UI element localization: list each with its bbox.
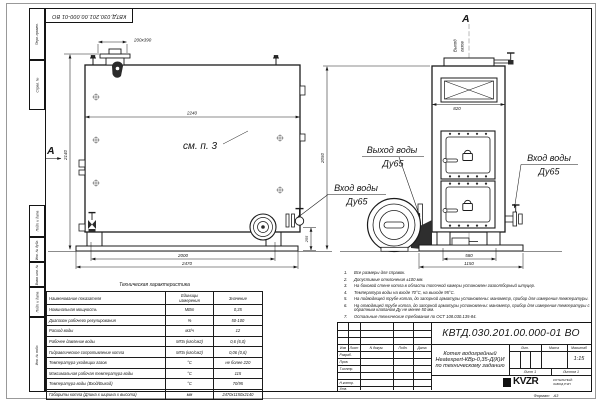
notes-list: 1.Все размеры для справок. 2.Допустимые …: [343, 271, 590, 321]
note-text: Все размеры для справок.: [354, 271, 590, 276]
cell-value: 70/95: [213, 379, 262, 390]
list-item: 5.На подводящей трубе котла, до запорной…: [343, 297, 590, 302]
sheets-total: Листов 1: [551, 370, 591, 374]
note-number: 4.: [343, 291, 354, 296]
frame-col-sprav: Справ. №: [29, 60, 45, 110]
list-item: 2.Допустимые отклонения ±100 мм.: [343, 278, 590, 283]
cell-value: 115: [213, 368, 262, 379]
table-row: Температура уходящих газов°Сне более 220: [47, 357, 263, 368]
table-row: Гидравлическое сопротивление котлаМПа (к…: [47, 347, 263, 358]
cell-name: Номинальная мощность: [47, 305, 166, 316]
cell-units: м3/ч: [166, 326, 213, 337]
table-row: Габариты котла (Длина х ширина х высота)…: [47, 389, 263, 400]
cell-name: Габариты котла (Длина х ширина х высота): [47, 389, 166, 400]
format-value: А3: [553, 393, 558, 398]
frame-col-perv-primen: Перв. примен.: [29, 8, 45, 60]
frame-col-label: Инв. № дубл.: [35, 239, 39, 259]
cell-name: Рабочее давление воды: [47, 336, 166, 347]
note-text: Остальные технические требования по ОСТ …: [354, 315, 590, 320]
scale-label: Масштаб: [567, 346, 591, 350]
note-text: На подводящей трубе котла, до запорной а…: [354, 297, 590, 302]
note-number: 6.: [343, 304, 354, 314]
format-label: Формат: [534, 393, 550, 398]
table-row: Диапазон рабочего регулирования%50-100: [47, 315, 263, 326]
col-header-name: Наименование показателя: [47, 292, 166, 305]
table-row: Температура воды (Вход/Выход)°С70/95: [47, 379, 263, 390]
role-nkontr: Н.контр.: [340, 381, 354, 385]
note-number: 1.: [343, 271, 354, 276]
kvzr-logo-icon: [503, 378, 511, 387]
kvzr-logo-text: KVZR: [513, 376, 538, 387]
company-name: КОТЕЛЬНЫЙ ЗАВОД РЭП: [553, 378, 572, 387]
cell-name: Диапазон рабочего регулирования: [47, 315, 166, 326]
note-number: 7.: [343, 315, 354, 320]
table-row: Номинальная мощностьМВт0,35: [47, 305, 263, 316]
company-line: ЗАВОД РЭП: [553, 382, 572, 386]
hdr-podp: Подп.: [393, 346, 413, 350]
tech-table-title: Техническая характеристика: [46, 282, 263, 288]
frame-col-podp-data-2: Подп. и дата: [29, 287, 45, 317]
frame-col-inv-dubl: Инв. № дубл.: [29, 237, 45, 262]
cell-value: 50-100: [213, 315, 262, 326]
cell-units: мм: [166, 389, 213, 400]
cell-value: не более 220: [213, 357, 262, 368]
list-item: 1.Все размеры для справок.: [343, 271, 590, 276]
company-logo-row: KVZR КОТЕЛЬНЫЙ ЗАВОД РЭП: [431, 375, 591, 390]
frame-col-inv-podl: Инв. № подл.: [29, 317, 45, 392]
scale-value: 1:15: [567, 356, 591, 362]
frame-col-label: Справ. №: [35, 78, 39, 93]
frame-col-label: Перв. примен.: [35, 23, 39, 45]
cell-name: Температура воды (Вход/Выход): [47, 379, 166, 390]
title-block: КВТД.030.201.00.000-01 ВО Котел водогрей…: [337, 322, 592, 392]
cell-units: °С: [166, 357, 213, 368]
role-prov: Пров.: [340, 360, 349, 364]
col-header-units: Единицы измерения: [166, 292, 213, 305]
note-text: Температура воды на входе 70°С, на выход…: [354, 291, 590, 296]
cell-units: МПа (кгс/см2): [166, 336, 213, 347]
cell-name: Температура уходящих газов: [47, 357, 166, 368]
product-title: Котел водогрейный Heatexpert-КВр-0,35-Д(…: [433, 345, 507, 374]
table-row: Максимальная рабочая температура воды°С1…: [47, 368, 263, 379]
cell-value: 0,35: [213, 305, 262, 316]
note-number: 2.: [343, 278, 354, 283]
tech-table: Наименование показателя Единицы измерени…: [46, 291, 263, 400]
role-razrab: Разраб.: [340, 353, 352, 357]
product-line: по техническому заданию: [435, 363, 504, 369]
cell-value: 2470х1150х2140: [213, 389, 262, 400]
note-text: На отводящей трубе котла, до запорной ар…: [354, 304, 590, 314]
mass-label: Масса: [541, 346, 567, 350]
table-row: Расход водым3/ч12: [47, 326, 263, 337]
note-text: Допустимые отклонения ±100 мм.: [354, 278, 590, 283]
note-number: 3.: [343, 284, 354, 289]
frame-col-label: Подп. и дата: [35, 211, 39, 232]
cell-units: °С: [166, 368, 213, 379]
note-number: 5.: [343, 297, 354, 302]
sheet-number: Лист 1: [509, 370, 551, 374]
list-item: 3.На боковой стене котла в области топоч…: [343, 284, 590, 289]
cell-value: 0,6 (6,0): [213, 336, 262, 347]
table-row: Рабочее давление водыМПа (кгс/см2)0,6 (6…: [47, 336, 263, 347]
cell-value: 12: [213, 326, 262, 337]
cell-name: Гидравлическое сопротивление котла: [47, 347, 166, 358]
top-stamp-doc-number: КВТД.030.201.00.000-01 ВО: [45, 8, 133, 23]
cell-value: 0,06 (0,6): [213, 347, 262, 358]
cell-units: МПа (кгс/см2): [166, 347, 213, 358]
list-item: 6.На отводящей трубе котла, до запорной …: [343, 304, 590, 314]
tech-table-header-row: Наименование показателя Единицы измерени…: [47, 292, 263, 305]
role-utv: Утв.: [340, 387, 348, 391]
note-text: На боковой стене котла в области топочно…: [354, 284, 590, 289]
col-header-units-2: измерения: [179, 298, 200, 303]
cell-name: Максимальная рабочая температура воды: [47, 368, 166, 379]
drawing-sheet: 2240 200х390 2140 А см. п. 3 2000 2470: [0, 0, 600, 400]
format-note: Формат А3: [500, 393, 592, 398]
cell-units: %: [166, 315, 213, 326]
hdr-list: Лист: [348, 346, 360, 350]
list-item: 7.Остальные технические требования по ОС…: [343, 315, 590, 320]
frame-col-label: Подп. и дата: [35, 292, 39, 313]
cell-units: °С: [166, 379, 213, 390]
cell-units: МВт: [166, 305, 213, 316]
hdr-izm: Изм: [338, 346, 348, 350]
frame-col-label: Взам. инв. №: [35, 264, 39, 284]
cell-name: Расход воды: [47, 326, 166, 337]
title-block-doc-number: КВТД.030.201.00.000-01 ВО: [431, 323, 591, 344]
hdr-docum: N докум.: [360, 346, 393, 350]
frame-col-vzam-inv: Взам. инв. №: [29, 262, 45, 287]
col-header-value: Значение: [213, 292, 262, 305]
role-tkontr: Т.контр.: [340, 367, 354, 371]
frame-col-podp-data-1: Подп. и дата: [29, 205, 45, 237]
frame-col-label: Инв. № подл.: [35, 344, 39, 364]
list-item: 4.Температура воды на входе 70°С, на вых…: [343, 291, 590, 296]
stamp-text: КВТД.030.201.00.000-01 ВО: [52, 13, 126, 19]
hdr-data: Дата: [413, 346, 431, 350]
lit-label: Лит.: [509, 346, 541, 350]
